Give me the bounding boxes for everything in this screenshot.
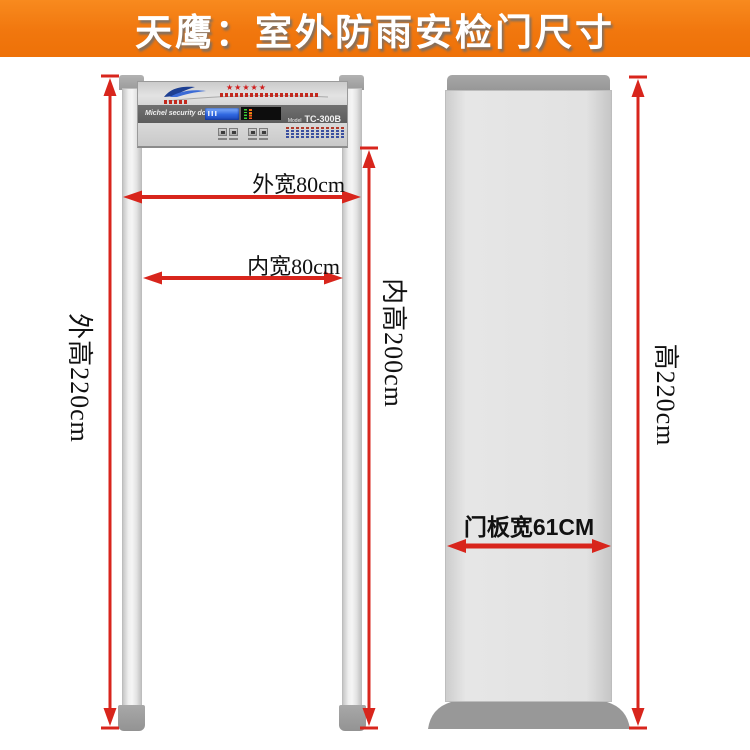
button-label-fine-print — [229, 138, 238, 140]
led-column-green — [244, 109, 247, 119]
dimension-arrows-overlay — [0, 0, 750, 750]
control-head-button-section — [138, 123, 347, 146]
control-head-display-strip: Michel security door ModelTC-300B — [138, 105, 347, 123]
side-height-arrow — [629, 77, 647, 728]
left-post-foot — [118, 705, 145, 731]
up-button — [248, 128, 257, 136]
outer-height-label: 外高220cm — [74, 303, 100, 453]
lcd-display — [205, 108, 239, 120]
left-post — [122, 88, 142, 708]
led-indicator-panel — [241, 107, 281, 120]
control-head-top-section: ★★★★★ — [138, 82, 347, 105]
right-post-foot — [339, 705, 366, 731]
inner-width-label: 内宽80cm — [220, 249, 340, 281]
inner-height-label: 内高200cm — [388, 268, 414, 418]
control-head-panel: ★★★★★ Michel security door ModelTC-300B — [137, 81, 348, 148]
button-label-fine-print — [259, 138, 268, 140]
led-column-red — [249, 109, 252, 119]
outer-width-label: 外宽80cm — [225, 167, 345, 199]
down-button — [259, 128, 268, 136]
reset-button — [229, 128, 238, 136]
side-panel-base — [424, 698, 634, 732]
slogan-fine-print — [220, 93, 318, 97]
side-panel-body — [445, 90, 612, 702]
star-rating: ★★★★★ — [226, 83, 267, 92]
inner-height-arrow — [360, 148, 378, 728]
brand-text: Michel security door — [145, 110, 213, 117]
right-post — [342, 88, 362, 708]
button-label-fine-print — [248, 138, 257, 140]
outer-height-arrow — [101, 76, 119, 728]
logo-caption-fine-print — [164, 100, 188, 104]
power-button — [218, 128, 227, 136]
side-height-label: 高220cm — [660, 335, 686, 455]
eagle-logo-icon — [162, 85, 210, 100]
page-title: 天鹰：室外防雨安检门尺寸 — [135, 2, 615, 56]
company-info-fine-print — [286, 127, 344, 139]
button-label-fine-print — [218, 138, 227, 140]
header-banner: 天鹰：室外防雨安检门尺寸 — [0, 0, 750, 57]
side-panel-width-label: 门板宽61CM — [447, 508, 611, 542]
